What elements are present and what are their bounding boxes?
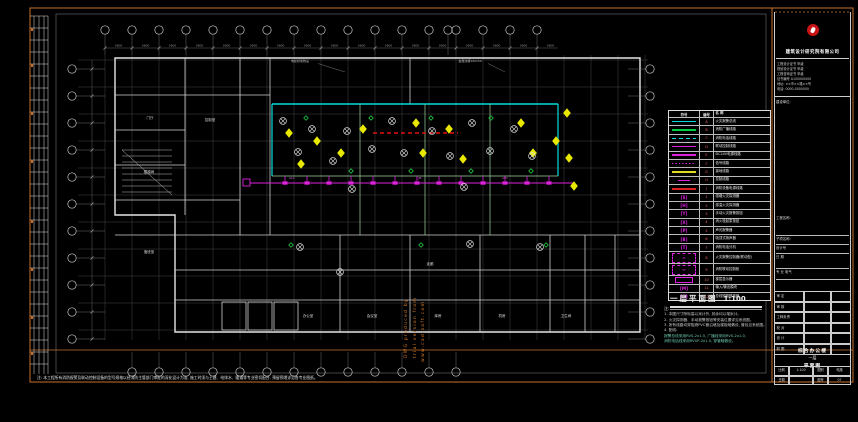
svg-text:值班室: 值班室 <box>144 249 155 254</box>
signature-cell <box>804 333 831 344</box>
module-icon <box>469 169 473 173</box>
signature-cell <box>831 302 851 313</box>
project-section-labels: 工程名称:子项名称:设计号日 期专 业 电气 <box>776 215 849 280</box>
smoke-detector-icon <box>338 149 344 157</box>
legend-row: [B]6吸顶式扬声器 <box>669 234 770 242</box>
svg-text:3600: 3600 <box>250 44 258 48</box>
legend-name: 火灾报警控制器(联动型) <box>714 256 770 260</box>
svg-text:3600: 3600 <box>412 44 420 48</box>
legend-code: 3 <box>699 210 714 217</box>
legend-name: 控制线路 <box>714 178 770 182</box>
svg-text:3600: 3600 <box>520 44 528 48</box>
signature-cell <box>831 291 851 302</box>
module-icon <box>304 116 308 120</box>
module-icon <box>289 243 293 247</box>
legend-code: 5 <box>699 227 714 234</box>
title-block-bottom-cell: 图别 <box>813 366 828 376</box>
ceiling-fixture-icon <box>295 149 302 156</box>
svg-text:JB: JB <box>418 176 422 180</box>
svg-text:3600: 3600 <box>439 44 447 48</box>
legend-symbol-thick-icon <box>672 154 696 156</box>
module-icon <box>489 116 493 120</box>
legend-symbol-sym-icon: [X] <box>680 220 687 225</box>
svg-text:门厅: 门厅 <box>147 115 154 120</box>
company-name: 建筑设计研究院有限公司 <box>772 49 853 55</box>
svg-text:3600: 3600 <box>385 44 393 48</box>
module-icon <box>349 169 353 173</box>
module-icon <box>369 116 373 120</box>
module-icon <box>544 243 548 247</box>
module-icon <box>529 169 533 173</box>
owner-label: 建设单位: <box>776 99 791 104</box>
svg-text:3600: 3600 <box>304 44 312 48</box>
legend-code: C <box>699 135 714 142</box>
ceiling-fixture-icon <box>330 158 337 165</box>
watermark-text-2: trial version from <box>413 236 418 358</box>
legend-row: EDC24V电源线路 <box>669 151 770 159</box>
legend-name: 消防电话线路 <box>714 137 770 141</box>
section-label: 日 期 <box>776 254 849 269</box>
legend-code: 9 <box>699 264 714 275</box>
ceiling-fixture-icon <box>401 150 408 157</box>
smoke-detector-icon <box>413 119 419 127</box>
svg-text:AP1: AP1 <box>502 176 508 180</box>
legend-code: 4 <box>699 219 714 226</box>
legend-name: 接地线路 <box>714 170 770 174</box>
ceiling-fixture-icon <box>369 146 376 153</box>
legend-symbol-box-icon <box>675 277 693 284</box>
title-block-bottom-cell: 07 <box>828 376 851 386</box>
svg-text:3600: 3600 <box>196 44 204 48</box>
legend-row: H控制线路 <box>669 176 770 184</box>
legend-code: A <box>699 118 714 125</box>
svg-text:AL1: AL1 <box>289 176 295 180</box>
legend-row: JB8火灾报警控制器(联动型) <box>669 251 770 263</box>
smoke-detector-icon <box>360 125 366 133</box>
legend-code: J <box>699 185 714 192</box>
legend-code: B <box>699 126 714 133</box>
legend-symbol-sym-icon: [P] <box>681 228 688 233</box>
legend-row: [H]2感温火灾探测器 <box>669 201 770 209</box>
detector-symbols <box>286 109 577 190</box>
plan-scale: 1:100 <box>724 295 746 303</box>
svg-text:3600: 3600 <box>169 44 177 48</box>
signature-role-label: 设 计 <box>774 333 804 344</box>
signature-cell <box>804 312 831 323</box>
signature-cell <box>804 323 831 334</box>
watermark-text-3: www.cad-soft.com <box>421 240 426 362</box>
legend-name: 消防设备电源线路 <box>714 187 770 191</box>
legend-row: [S]1感烟火灾探测器 <box>669 193 770 201</box>
company-logo-icon <box>807 24 819 36</box>
legend-row: [T]7消防电话分机 <box>669 243 770 251</box>
svg-text:3600: 3600 <box>142 44 150 48</box>
legend-name: 消防联动控制柜 <box>714 268 770 272</box>
legend-name: 声光报警器 <box>714 229 770 233</box>
ceiling-fixture-icon <box>467 241 474 248</box>
legend-symbol-dot-icon <box>672 163 696 164</box>
legend-name: 手动火灾报警按钮 <box>714 212 770 216</box>
title-block: 建筑设计研究院有限公司 工程设计证书 甲级规划设计证书 甲级工程咨询证书 甲级证… <box>772 10 853 382</box>
legend-code: 8 <box>699 252 714 263</box>
legend-code: 2 <box>699 202 714 209</box>
legend-symbol-line-icon <box>672 121 696 122</box>
smoke-detector-icon <box>566 154 572 162</box>
signature-cell <box>831 312 851 323</box>
section-label: 专 业 电气 <box>776 269 849 280</box>
legend-row: 10楼层显示器 <box>669 275 770 283</box>
smoke-detector-icon <box>564 109 570 117</box>
legend-row: F信号线路 <box>669 159 770 167</box>
legend-symbol-sym-icon: [S] <box>681 195 688 200</box>
ceiling-fixture-icon <box>447 153 454 160</box>
legend-symbol-sym-icon: [H] <box>680 203 687 208</box>
svg-text:办公室: 办公室 <box>303 313 314 318</box>
svg-text:楼梯间: 楼梯间 <box>144 169 155 174</box>
legend-symbol-sym-icon: [T] <box>681 245 688 250</box>
svg-text:3600: 3600 <box>547 44 555 48</box>
signature-cell <box>831 333 851 344</box>
legend-name: 消火栓起泵按钮 <box>714 220 770 224</box>
svg-text:3600: 3600 <box>223 44 231 48</box>
watermark-text-1: DWG produced by <box>404 236 409 358</box>
ceiling-fixture-icon <box>389 118 396 125</box>
module-icon <box>409 169 413 173</box>
binding-strip <box>30 16 48 374</box>
legend-row: [X]4消火栓起泵按钮 <box>669 218 770 226</box>
ceiling-fixture-icon <box>469 120 476 127</box>
axis-bubbles <box>68 26 654 376</box>
legend-name: 吸顶式扬声器 <box>714 237 770 241</box>
ceiling-fixture-icon <box>344 128 351 135</box>
room-labels: 门厅楼梯间值班室走廊办公室会议室库房机房卫生间控制室 <box>144 115 572 318</box>
smoke-detector-icon <box>518 119 524 127</box>
legend-code: 6 <box>699 235 714 242</box>
signature-role-label: 审 核 <box>774 302 804 313</box>
smoke-detector-icon <box>298 160 304 168</box>
section-label: 设计号 <box>776 245 849 254</box>
legend-row: XF9消防联动控制柜 <box>669 263 770 275</box>
legend-code: F <box>699 160 714 167</box>
legend-symbol-line-icon <box>672 146 696 147</box>
signature-cell <box>804 291 831 302</box>
cad-drawing-sheet: 3600360036003600360036003600360036003600… <box>0 0 858 422</box>
signature-cell <box>804 302 831 313</box>
section-label: 子项名称: <box>776 236 849 245</box>
svg-text:3600: 3600 <box>115 44 123 48</box>
legend-symbol-line-icon <box>672 129 696 130</box>
legend-symbol-dashbox-icon: JB <box>672 253 696 263</box>
legend-code: 10 <box>699 276 714 283</box>
legend-name: 火灾报警总线 <box>714 120 770 124</box>
legend-name: 消防电话分机 <box>714 246 770 250</box>
legend-symbol-short-icon <box>678 180 690 182</box>
legend-code: H <box>699 177 714 184</box>
ceiling-fixture-icon <box>461 184 468 191</box>
scale-number-table: 比例1:100图别电施日期图号07 <box>774 366 851 385</box>
section-label: 工程名称: <box>776 215 849 236</box>
svg-text:会议室: 会议室 <box>367 313 378 318</box>
legend-symbol-dashbox-icon: XF <box>672 265 696 275</box>
ceiling-fixture-icon <box>511 126 518 133</box>
legend-name: 感温火灾探测器 <box>714 204 770 208</box>
svg-text:3600: 3600 <box>466 44 474 48</box>
svg-text:3600: 3600 <box>277 44 285 48</box>
signature-role-label: 校 对 <box>774 323 804 334</box>
divider <box>776 58 849 59</box>
legend-code: 1 <box>699 194 714 201</box>
legend-name: 感烟火灾探测器 <box>714 195 770 199</box>
title-block-bottom-cell: 电施 <box>828 366 851 376</box>
svg-text:3600: 3600 <box>331 44 339 48</box>
legend-name: 楼层显示器 <box>714 278 770 282</box>
certificate-lines: 工程设计证书 甲级规划设计证书 甲级工程咨询证书 甲级证书编号 A1000000… <box>777 62 849 92</box>
title-block-bottom-cell: 比例 <box>774 366 789 376</box>
svg-text:电缆桥架敷设: 电缆桥架敷设 <box>291 58 309 63</box>
svg-text:3600: 3600 <box>493 44 501 48</box>
notes-heading: 注: <box>664 306 669 311</box>
legend-table: 符号编号名 称A火灾报警总线B消防广播线路C消防电话线路D联动控制线路EDC24… <box>668 110 771 301</box>
smoke-detector-icon <box>460 155 466 163</box>
certificate-line: 电话: 0000-0000000 <box>777 87 849 92</box>
title-block-bottom-cell: 日期 <box>774 376 789 386</box>
legend-symbol-dash-icon <box>672 138 696 139</box>
title-block-bottom-cell: 图号 <box>813 376 828 386</box>
legend-row: A火灾报警总线 <box>669 117 770 125</box>
title-block-bottom-cell <box>789 376 813 386</box>
bottom-note: 注: 本工程所有消防报警及联动控制设备的型号规格以经消防主管部门审批的深化设计为… <box>37 375 637 381</box>
legend-code: D <box>699 143 714 150</box>
legend-symbol-sym-icon: [B] <box>680 237 687 242</box>
module-icon <box>429 116 433 120</box>
ceiling-fixture-icon <box>309 126 316 133</box>
svg-text:走廊: 走廊 <box>427 261 435 266</box>
legend-row: [P]5声光报警器 <box>669 226 770 234</box>
svg-text:金属线槽100x50: 金属线槽100x50 <box>458 58 481 63</box>
svg-text:3600: 3600 <box>358 44 366 48</box>
smoke-detector-icon <box>314 137 320 145</box>
legend-symbol-line-icon <box>672 171 696 172</box>
legend-name: 信号线路 <box>714 162 770 166</box>
legend-code: G <box>699 168 714 175</box>
ceiling-fixture-icon <box>349 186 356 193</box>
ceiling-fixture-icon <box>297 244 304 251</box>
signature-role-label: 工种负责 <box>774 312 804 323</box>
legend-row: C消防电话线路 <box>669 134 770 142</box>
sheet-title-line2: 一层 <box>774 355 851 361</box>
legend-row: J消防设备电源线路 <box>669 184 770 192</box>
title-block-bottom-cell: 1:100 <box>789 366 813 376</box>
legend-name: 联动控制线路 <box>714 145 770 149</box>
sheet-title-line1: 综合办公楼 <box>774 347 851 354</box>
legend-header: 编号 <box>699 111 714 117</box>
svg-text:控制室: 控制室 <box>205 117 216 122</box>
divider <box>774 96 851 97</box>
panel-labels: AL1JBAP1 <box>289 176 508 180</box>
signature-table: 审 定审 核工种负责校 对设 计制 图 <box>774 291 851 355</box>
smoke-detector-icon <box>286 129 292 137</box>
structural-grid <box>78 55 648 340</box>
legend-header: 符号 <box>669 112 699 117</box>
signature-cell <box>831 323 851 334</box>
svg-text:库房: 库房 <box>435 313 443 318</box>
legend-header: 名 称 <box>714 112 770 116</box>
smoke-detector-icon <box>446 125 452 133</box>
legend-symbol-sym-icon: [Y] <box>681 211 688 216</box>
ceiling-fixture-icon <box>537 244 544 251</box>
legend-name: DC24V电源线路 <box>714 153 770 157</box>
legend-row: D联动控制线路 <box>669 142 770 150</box>
signature-role-label: 审 定 <box>774 291 804 302</box>
legend-row: B消防广播线路 <box>669 125 770 133</box>
legend-name: 消防广播线路 <box>714 128 770 132</box>
legend-row: G接地线路 <box>669 167 770 175</box>
ceiling-fixture-icon <box>280 118 287 125</box>
legend-row: [Y]3手动火灾报警按钮 <box>669 209 770 217</box>
legend-symbol-thick-icon <box>672 188 696 190</box>
svg-text:机房: 机房 <box>499 313 507 318</box>
svg-text:卫生间: 卫生间 <box>561 313 572 318</box>
legend-code: 7 <box>699 244 714 251</box>
plan-title: 一层平面图 <box>670 293 718 304</box>
legend-code: E <box>699 152 714 159</box>
